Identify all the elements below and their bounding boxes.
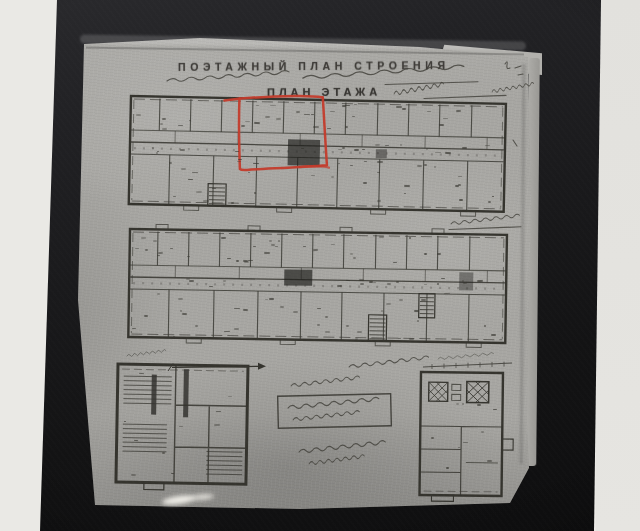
floor-plan-label: ПЛАН ЭТАЖА — [267, 86, 381, 99]
document-title: ПОЭТАЖНЫЙ ПЛАН СТРОЕНИЯ — [178, 59, 450, 73]
page: ПОЭТАЖНЫЙ ПЛАН СТРОЕНИЯ ПЛАН ЭТАЖА — [0, 0, 640, 531]
page-margin-right — [596, 0, 640, 531]
